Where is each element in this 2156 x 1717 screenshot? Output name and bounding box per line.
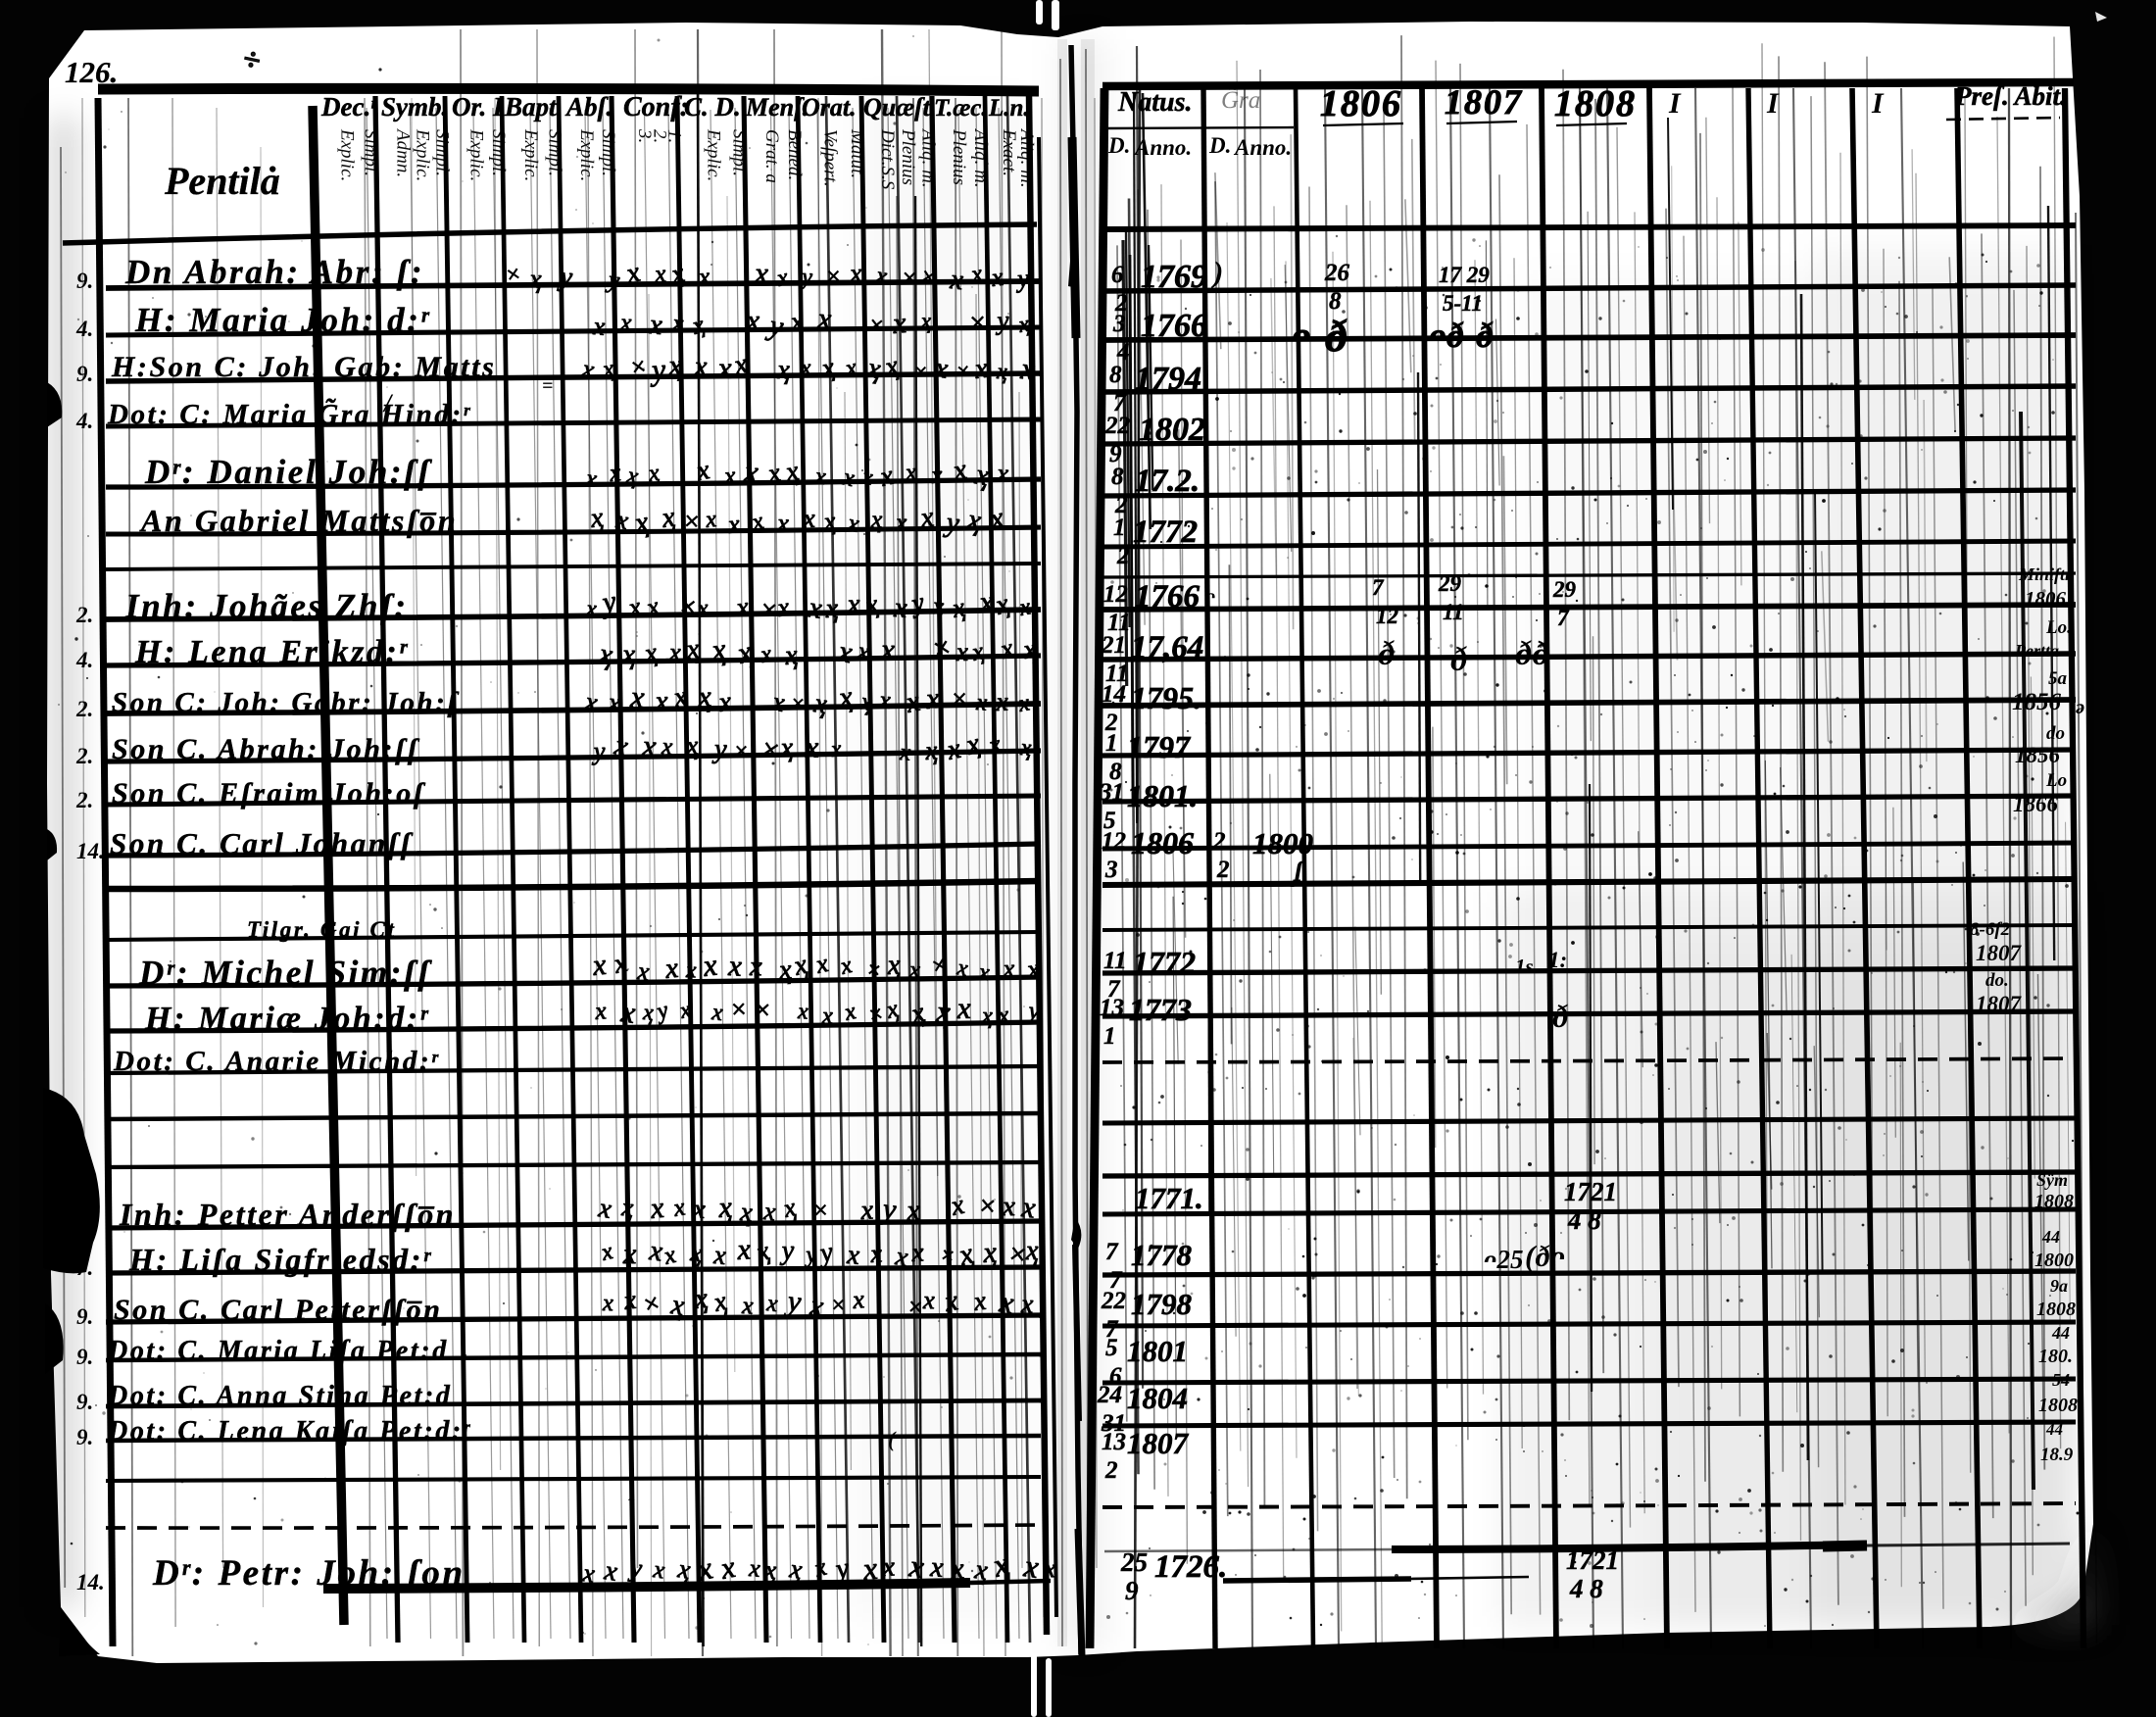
svg-text:180.: 180. (2038, 1346, 2073, 1367)
svg-text:Anno.: Anno. (1133, 135, 1192, 160)
svg-text:Bened.: Bened. (784, 129, 805, 180)
svg-text:×: × (812, 1198, 829, 1224)
svg-text:1773: 1773 (1129, 992, 1192, 1027)
svg-text:x: x (692, 1194, 707, 1224)
svg-text:4.: 4. (75, 648, 93, 672)
svg-text:14: 14 (1102, 681, 1126, 708)
svg-text:4.: 4. (75, 317, 93, 341)
svg-text:9.: 9. (76, 362, 93, 386)
svg-text:9.: 9. (76, 1425, 93, 1449)
svg-text:ҳ: ҳ (684, 730, 699, 760)
svg-text:x: x (930, 462, 944, 489)
svg-text:Explic.: Explic. (703, 128, 723, 181)
svg-text:Dʳ: Petr: Joh: ſon: Dʳ: Petr: Joh: ſon (152, 1553, 465, 1594)
svg-text:×: × (790, 691, 807, 716)
svg-text:1807: 1807 (1127, 1426, 1190, 1460)
svg-text:5a: 5a (2048, 668, 2068, 689)
svg-text:ҳ: ҳ (923, 735, 938, 765)
svg-text:×: × (866, 312, 886, 340)
svg-text:ҳ: ҳ (824, 594, 839, 624)
svg-text:9.: 9. (76, 1390, 93, 1414)
svg-text:Lo.: Lo. (2045, 617, 2072, 638)
svg-text:x: x (893, 592, 908, 624)
svg-text:I: I (1668, 87, 1682, 120)
svg-text:×: × (906, 1294, 925, 1321)
svg-text:Dict.S.S: Dict.S.S (877, 128, 898, 190)
svg-text:ð: ð (1325, 311, 1347, 361)
svg-text:8: 8 (1109, 362, 1122, 388)
svg-text:Sӱm: Sӱm (2036, 1170, 2068, 1190)
svg-text:25: 25 (1120, 1547, 1148, 1577)
svg-text:x: x (668, 638, 682, 666)
svg-text:x: x (1002, 955, 1015, 983)
svg-text:1800: 1800 (1252, 826, 1313, 860)
svg-text:Simpl.: Simpl. (361, 129, 381, 176)
svg-text:1721: 1721 (1566, 1545, 1619, 1575)
svg-text:Explic.: Explic. (576, 128, 597, 181)
svg-text:Dot: C. Maria Liſa Pet:d: Dot: C. Maria Liſa Pet:d (107, 1336, 449, 1366)
svg-text:x: x (816, 301, 833, 336)
svg-text:44: 44 (2041, 1227, 2060, 1247)
svg-text:x: x (602, 1291, 613, 1316)
svg-text:Dot: C. Anarie Michd:ʳ: Dot: C. Anarie Michd:ʳ (113, 1046, 440, 1077)
svg-text:x: x (878, 687, 892, 714)
svg-text:8-6ſ2: 8-6ſ2 (1970, 919, 2011, 940)
svg-text:×: × (901, 264, 918, 292)
svg-text:Dʳ: Daniel Joh:ſſ: Dʳ: Daniel Joh:ſſ (144, 453, 432, 491)
svg-text:×: × (976, 1190, 998, 1223)
svg-text:x: x (619, 310, 632, 336)
svg-text:Simpl.: Simpl. (432, 129, 453, 176)
svg-text:Natus.: Natus. (1117, 87, 1192, 118)
svg-text:1:: 1: (1548, 948, 1567, 972)
svg-text:x: x (711, 1240, 727, 1270)
svg-text:x: x (727, 950, 744, 983)
svg-text:1.: 1. (664, 129, 685, 143)
svg-text:1802: 1802 (1139, 412, 1205, 448)
svg-text:x: x (996, 459, 1009, 488)
svg-text:1801: 1801 (1127, 1334, 1188, 1368)
svg-text:29: 29 (1552, 577, 1577, 602)
svg-text:Simpl.: Simpl. (598, 129, 618, 176)
svg-text:31: 31 (1099, 779, 1124, 806)
svg-text:x: x (641, 728, 658, 763)
svg-text:×: × (682, 506, 702, 536)
svg-text:9.: 9. (76, 1304, 93, 1329)
svg-text:ҳ: ҳ (1025, 1236, 1039, 1266)
svg-text:1801.: 1801. (1127, 778, 1198, 813)
svg-text:126.: 126. (65, 55, 118, 89)
svg-text:1772: 1772 (1133, 515, 1198, 550)
svg-text:Explic.: Explic. (413, 128, 433, 181)
svg-text:H: Lena Erikzd:ʳ: H: Lena Erikzd:ʳ (134, 634, 409, 670)
svg-text:ҳ: ҳ (982, 1236, 999, 1269)
svg-text:x: x (848, 258, 862, 288)
svg-text:12: 12 (1103, 581, 1128, 608)
svg-text:ᴖ: ᴖ (1205, 584, 1216, 608)
svg-text:x: x (975, 690, 989, 716)
svg-text:Explic.: Explic. (520, 128, 541, 181)
svg-text:Simpl.: Simpl. (728, 129, 749, 176)
svg-text:2.: 2. (75, 603, 93, 627)
svg-text:2: 2 (1216, 857, 1230, 883)
svg-text:1: 1 (1113, 515, 1126, 541)
svg-text:x: x (746, 305, 761, 337)
svg-text:9a: 9a (2050, 1276, 2068, 1296)
svg-text:54: 54 (2052, 1370, 2070, 1390)
svg-text:24: 24 (1097, 1382, 1122, 1408)
svg-text:Pertta: Pertta (2014, 641, 2059, 661)
svg-text:x: x (846, 1240, 861, 1271)
svg-text:Menſ.: Menſ. (745, 93, 808, 122)
svg-text:Son C: Joh: Gabr: Joh:ſ: Son C: Joh: Gabr: Joh:ſ (112, 687, 460, 718)
svg-text:x: x (749, 952, 763, 982)
svg-text:1726.: 1726. (1154, 1549, 1227, 1585)
svg-text:2.: 2. (75, 697, 93, 721)
svg-text:Dot: C: Maria G̃ra Hind:ʳ: Dot: C: Maria G̃ra Hind:ʳ (107, 398, 471, 430)
svg-text:x: x (955, 637, 969, 666)
svg-text:Dʳ: Michel Sim:ſſ: Dʳ: Michel Sim:ſſ (138, 954, 432, 992)
svg-text:×: × (733, 739, 750, 764)
svg-text:C. D.: C. D. (684, 92, 741, 122)
svg-text:×: × (753, 995, 773, 1026)
svg-text:Conf:: Conf: (623, 92, 689, 123)
svg-text:11: 11 (1103, 948, 1127, 974)
svg-text:x: x (661, 734, 674, 760)
svg-text:Symb.: Symb. (381, 92, 448, 122)
svg-text:у: у (711, 734, 728, 764)
svg-text:G̃ra: G̃ra (1221, 87, 1260, 114)
svg-text:x: x (736, 1233, 753, 1266)
svg-text:8: 8 (1111, 464, 1124, 490)
svg-text:Aliq. m.: Aliq. m. (1016, 127, 1037, 188)
svg-text:1804: 1804 (1127, 1381, 1188, 1415)
svg-text:Aliq. m.: Aliq. m. (970, 127, 991, 188)
svg-text:9.: 9. (76, 269, 93, 293)
svg-text:x: x (592, 312, 607, 341)
svg-text:Inh: Petter Anderſſo̅n: Inh: Petter Anderſſo̅n (119, 1197, 456, 1232)
svg-text:12: 12 (1376, 604, 1398, 628)
svg-text:D.: D. (1107, 133, 1130, 158)
svg-text:17.2.: 17.2. (1135, 464, 1200, 499)
svg-text:3: 3 (1112, 311, 1126, 337)
svg-text:×: × (825, 264, 842, 290)
svg-text:ð: ð (1552, 1000, 1569, 1035)
svg-text:x: x (804, 730, 819, 765)
svg-text:1772: 1772 (1133, 945, 1196, 980)
svg-text:1794: 1794 (1135, 361, 1201, 397)
svg-text:Or. I: Or. I (452, 92, 505, 122)
svg-text:ҳ: ҳ (779, 733, 794, 763)
svg-text:1807: 1807 (1976, 992, 2023, 1016)
svg-text:1797: 1797 (1127, 729, 1192, 764)
svg-text:x: x (694, 352, 708, 382)
svg-text:×: × (955, 358, 972, 383)
svg-text:Dot: C. Anna Stina Pet:d: Dot: C. Anna Stina Pet:d (107, 1381, 453, 1411)
svg-text:Preſ. Abit.: Preſ. Abit. (1954, 81, 2067, 111)
svg-text:22: 22 (1101, 1288, 1126, 1314)
svg-text:Simpl.: Simpl. (545, 129, 565, 176)
svg-text:1766: 1766 (1135, 579, 1200, 614)
svg-text:ҳ: ҳ (763, 1555, 778, 1585)
svg-text:у: у (800, 265, 813, 290)
svg-text:x: x (922, 1286, 936, 1314)
svg-text:1795.: 1795. (1131, 680, 1201, 715)
svg-text:x: x (846, 589, 860, 620)
svg-text:x: x (1020, 1289, 1034, 1318)
svg-text:x: x (868, 1239, 883, 1268)
svg-text:18.9: 18.9 (2040, 1445, 2074, 1465)
svg-text:17 29: 17 29 (1439, 263, 1490, 287)
svg-text:1807: 1807 (1976, 941, 2023, 965)
svg-text:11: 11 (1443, 600, 1464, 624)
svg-text:×: × (967, 307, 988, 339)
svg-text:T.æc.: T.æc. (934, 95, 988, 122)
svg-text:1806: 1806 (2025, 587, 2067, 611)
svg-text:2: 2 (1116, 543, 1130, 569)
svg-text:44: 44 (2051, 1323, 2070, 1343)
svg-text:H: Maria Joh: d:ʳ: H: Maria Joh: d:ʳ (134, 301, 430, 339)
svg-text:x: x (910, 1237, 925, 1267)
svg-text:1808: 1808 (2038, 1395, 2078, 1416)
svg-text:ᴖ: ᴖ (1292, 314, 1311, 358)
svg-text:1: 1 (1105, 730, 1118, 757)
svg-text:x: x (1043, 1553, 1056, 1583)
svg-text:44: 44 (2045, 1420, 2063, 1439)
svg-text:x: x (722, 463, 736, 490)
svg-text:2: 2 (1212, 828, 1226, 855)
svg-text:13: 13 (1102, 1429, 1126, 1455)
svg-text:ə: ə (2076, 695, 2084, 718)
svg-text:I: I (1766, 87, 1780, 120)
svg-text:Son C. Carl Petterſſo̅n: Son C. Carl Petterſſo̅n (114, 1294, 443, 1326)
svg-text:ҳ: ҳ (697, 680, 713, 713)
svg-text:x: x (802, 504, 815, 533)
svg-text:Matut.: Matut. (847, 128, 867, 178)
svg-text:Plenius: Plenius (898, 128, 918, 185)
svg-text:Admn.: Admn. (393, 127, 414, 177)
svg-text:1808: 1808 (2036, 1299, 2076, 1320)
svg-text:×: × (951, 684, 969, 713)
svg-text:×: × (830, 1293, 847, 1318)
svg-text:×: × (913, 360, 929, 384)
svg-text:x: x (653, 261, 666, 288)
svg-text:7: 7 (1105, 1239, 1119, 1265)
svg-text:Anno.: Anno. (1233, 135, 1292, 160)
svg-text:ᴖð-ð: ᴖð-ð (1429, 316, 1494, 355)
svg-text:x: x (647, 309, 663, 341)
svg-text:1s: 1s (1515, 955, 1534, 978)
svg-text:x: x (1002, 1191, 1015, 1222)
svg-text:Orat.: Orat. (802, 93, 857, 122)
svg-text:14.: 14. (76, 1570, 105, 1594)
svg-text:An Gabriel Mattsſo̅n: An Gabriel Mattsſo̅n (139, 503, 458, 538)
svg-text:do.: do. (1985, 970, 2009, 991)
svg-text:29: 29 (1438, 571, 1462, 596)
svg-text:5: 5 (1105, 1335, 1118, 1361)
svg-text:x: x (995, 687, 1008, 716)
svg-text:6: 6 (1111, 262, 1124, 288)
svg-text:1856: 1856 (2015, 743, 2061, 767)
svg-text:Grat. a: Grat. a (761, 129, 782, 183)
svg-text:x: x (859, 1195, 875, 1226)
svg-text:x: x (717, 351, 733, 385)
svg-text:2.: 2. (75, 788, 93, 812)
svg-text:4 8: 4 8 (1569, 1574, 1603, 1603)
svg-text:D.: D. (1208, 133, 1231, 158)
svg-text:1766: 1766 (1141, 308, 1207, 344)
svg-text:13: 13 (1100, 995, 1124, 1021)
svg-text:1769: 1769 (1141, 259, 1207, 295)
svg-text:Son C. Eſraim Joh:oſ: Son C. Eſraim Joh:oſ (112, 777, 426, 809)
svg-text:ҳ: ҳ (920, 309, 932, 333)
svg-text:x: x (956, 991, 972, 1025)
svg-text:1798: 1798 (1131, 1287, 1193, 1321)
svg-text:1771.: 1771. (1135, 1181, 1203, 1215)
svg-text:x: x (908, 957, 921, 983)
svg-text:Plenius: Plenius (949, 128, 969, 185)
svg-text:Lo: Lo (2045, 770, 2067, 791)
svg-text:2: 2 (1104, 1457, 1118, 1484)
svg-text:x: x (880, 632, 896, 666)
svg-text:4.: 4. (75, 409, 93, 433)
svg-text:H: Mariæ Joh:d:ʳ: H: Mariæ Joh:d:ʳ (144, 1001, 430, 1037)
svg-text:x: x (654, 686, 668, 717)
svg-text:ҳ: ҳ (886, 950, 901, 981)
svg-text:x: x (754, 256, 769, 290)
svg-text:ҳ: ҳ (621, 639, 636, 670)
svg-text:x: x (797, 999, 809, 1024)
svg-text:I: I (1871, 87, 1885, 120)
svg-text:x: x (741, 1293, 755, 1320)
svg-text:Inh: Johães Zhſ:: Inh: Johães Zhſ: (124, 587, 409, 625)
svg-text:H:Son C: Joh: Gab: Matts: H:Son C: Joh: Gab: Matts (111, 351, 496, 383)
svg-text:ð: ð (1378, 634, 1396, 672)
svg-text:Quæſt.: Quæſt. (863, 93, 936, 122)
svg-text:Son C. Carl Johanſſ: Son C. Carl Johanſſ (110, 826, 414, 860)
svg-text:Dec.ʳ: Dec.ʳ (320, 92, 377, 122)
svg-text:Aliq. m.: Aliq. m. (918, 127, 939, 188)
svg-text:2.: 2. (75, 744, 93, 768)
svg-text:7: 7 (1557, 606, 1570, 630)
svg-text:L.n.: L.n. (988, 95, 1030, 122)
svg-text:x: x (594, 998, 608, 1025)
svg-text:ðð: ðð (1515, 634, 1549, 672)
svg-text:у: у (779, 1236, 796, 1266)
svg-text:×: × (729, 994, 749, 1024)
svg-text:21: 21 (1101, 632, 1126, 659)
svg-text:Simpl.: Simpl. (488, 129, 509, 176)
svg-text:ҳ: ҳ (717, 1191, 734, 1224)
svg-text:14.: 14. (76, 839, 105, 863)
svg-text:Miniſtr: Miniſtr (2018, 564, 2073, 584)
svg-text:Son C. Abrah: Joh:ſſ: Son C. Abrah: Joh:ſſ (112, 733, 420, 765)
svg-text:Tilgr. Gai Ct: Tilgr. Gai Ct (247, 917, 396, 942)
svg-text:ð: ð (1450, 640, 1468, 678)
svg-text:26: 26 (1324, 260, 1350, 286)
svg-text:9: 9 (1125, 1576, 1139, 1605)
svg-text:1808: 1808 (1554, 83, 1637, 124)
svg-text:ᴖ25: ᴖ25 (1484, 1245, 1524, 1274)
svg-text:3: 3 (1104, 857, 1118, 883)
svg-text:=: = (542, 375, 553, 397)
svg-text:x: x (906, 1194, 922, 1227)
svg-text:1866: 1866 (2013, 792, 2059, 816)
svg-text:9.: 9. (76, 1345, 93, 1369)
svg-text:1800: 1800 (2034, 1250, 2074, 1271)
svg-text:x: x (821, 1004, 833, 1029)
svg-text:x: x (929, 1551, 945, 1584)
svg-text:do: do (2046, 723, 2065, 744)
svg-text:ҳ: ҳ (667, 349, 684, 382)
svg-text:ҳ: ҳ (981, 1004, 993, 1029)
svg-text:H: Liſa Sigfriedsd:ʳ: H: Liſa Sigfriedsd:ʳ (128, 1242, 432, 1277)
svg-text:(ðᴖ: (ðᴖ (1525, 1239, 1565, 1273)
svg-text:Veſpert.: Veſpert. (820, 129, 841, 187)
svg-text:Abſ.: Abſ. (564, 92, 612, 122)
svg-text:1856: 1856 (2012, 689, 2062, 715)
svg-text:x: x (881, 1551, 897, 1583)
svg-text:ҳ: ҳ (528, 264, 543, 294)
svg-text:ҳ: ҳ (870, 507, 883, 533)
svg-text:Dot: C. Lena Kaiſa Pet:d:ʳ: Dot: C. Lena Kaiſa Pet:d:ʳ (107, 1416, 471, 1447)
svg-text:1721: 1721 (1564, 1177, 1617, 1206)
svg-text:ҳ: ҳ (776, 355, 791, 385)
svg-text:5-11: 5-11 (1443, 291, 1483, 316)
svg-text:1: 1 (1103, 1023, 1116, 1050)
svg-text:x: x (895, 510, 907, 536)
svg-text:Bapt.: Bapt. (504, 92, 563, 122)
svg-text:Pentilȧ: Pentilȧ (164, 159, 280, 203)
svg-text:Explic.: Explic. (337, 128, 358, 181)
svg-text:4 8: 4 8 (1567, 1205, 1601, 1235)
svg-text:x: x (685, 957, 698, 982)
svg-text:12: 12 (1102, 828, 1126, 855)
svg-text:22: 22 (1104, 413, 1130, 439)
svg-text:x: x (629, 679, 646, 714)
svg-text:×: × (676, 590, 699, 623)
svg-text:1808: 1808 (2034, 1191, 2074, 1212)
svg-text:Exact.: Exact. (999, 128, 1019, 176)
svg-text:1807: 1807 (1445, 82, 1523, 122)
svg-text:Dn Abrah: Abr: ſ:: Dn Abrah: Abr: ſ: (124, 253, 424, 291)
svg-text:17,64: 17,64 (1131, 630, 1203, 665)
svg-text:x: x (622, 1238, 637, 1270)
svg-text:x: x (899, 740, 912, 766)
svg-text:1778: 1778 (1131, 1238, 1193, 1272)
svg-text:1806: 1806 (1131, 825, 1194, 860)
svg-text:Explic.: Explic. (466, 128, 487, 181)
svg-text:7: 7 (1372, 575, 1385, 600)
svg-text:x: x (748, 1555, 761, 1583)
svg-text:ҳ: ҳ (738, 1197, 754, 1227)
svg-text:x: x (776, 509, 790, 537)
